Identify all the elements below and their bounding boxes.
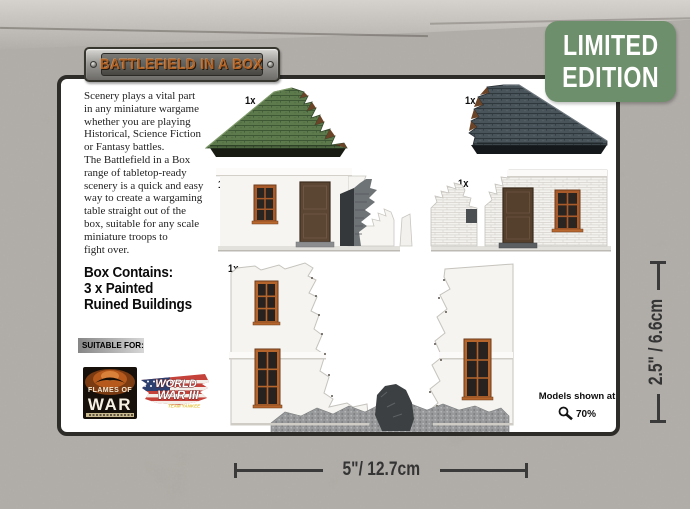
models-note-text: Models shown at [536,391,618,402]
product-info-card: Scenery plays a vital part in any miniat… [57,75,620,436]
ww3-tagline: TEAM YANKEE [168,404,201,409]
badge-line1: LIMITED [563,30,659,62]
battlefield-in-a-box-plaque: BATTLEFIELD IN A BOX [84,47,280,82]
height-dimension-label: 2.5" / 6.6cm [646,289,668,394]
dark-rubble-lump [375,384,414,431]
magnifier-icon [558,406,574,422]
box-contains-text: Box Contains: 3 x Painted Ruined Buildin… [84,265,192,313]
lower-window [253,349,282,408]
zoom-percent: 70% [576,409,596,420]
debris-specks [311,277,447,407]
ruined-building-plaster [214,162,416,257]
door [300,182,330,242]
door-step [296,242,334,247]
fow-line1: FLAMES OF [88,387,132,394]
width-dimension-line-right [440,469,525,472]
fow-line2: WAR [88,395,132,414]
suitable-for-bar: SUITABLE FOR: [78,338,144,353]
width-dimension-line-left [237,469,323,472]
window [552,190,583,232]
badge-line2: EDITION [562,62,659,94]
roof-eave [471,145,607,154]
world-war-iii-logo: WORLD WAR III TEAM YANKEE [139,372,210,412]
door [503,188,533,243]
ruined-building-two-storey [221,257,523,436]
roof-tiles [206,88,347,148]
plaque-panel: BATTLEFIELD IN A BOX [101,53,263,76]
models-zoom-note: 70% [536,406,618,422]
box-back-panel: { "badge": { "line1": "LIMITED", "line2"… [0,0,690,509]
stone-block [466,209,477,223]
upper-window [253,281,280,325]
window [252,185,278,224]
green-roof-model [204,85,356,160]
ww3-line2: WAR III [157,388,199,402]
rivet-icon [267,61,274,68]
ruined-stone-corner [340,188,354,246]
right-window [462,339,493,400]
flames-of-war-logo: FLAMES OF WAR [83,367,137,419]
roof-eave [210,148,346,157]
height-dimension-line-top [657,264,660,290]
door-step [499,243,537,248]
limited-edition-badge: LIMITED EDITION [545,21,676,102]
ruined-building-stone [429,162,615,257]
height-dimension-line-bottom [657,394,660,420]
width-dimension-label: 5"/ 12.7cm [320,459,442,481]
width-dimension-cap-right [525,463,528,478]
cornice [216,168,352,176]
brand-title: BATTLEFIELD IN A BOX [101,56,264,73]
cornice [507,170,607,177]
rivet-icon [90,61,97,68]
left-tower [231,263,369,425]
height-dimension-cap-bottom [650,420,666,423]
